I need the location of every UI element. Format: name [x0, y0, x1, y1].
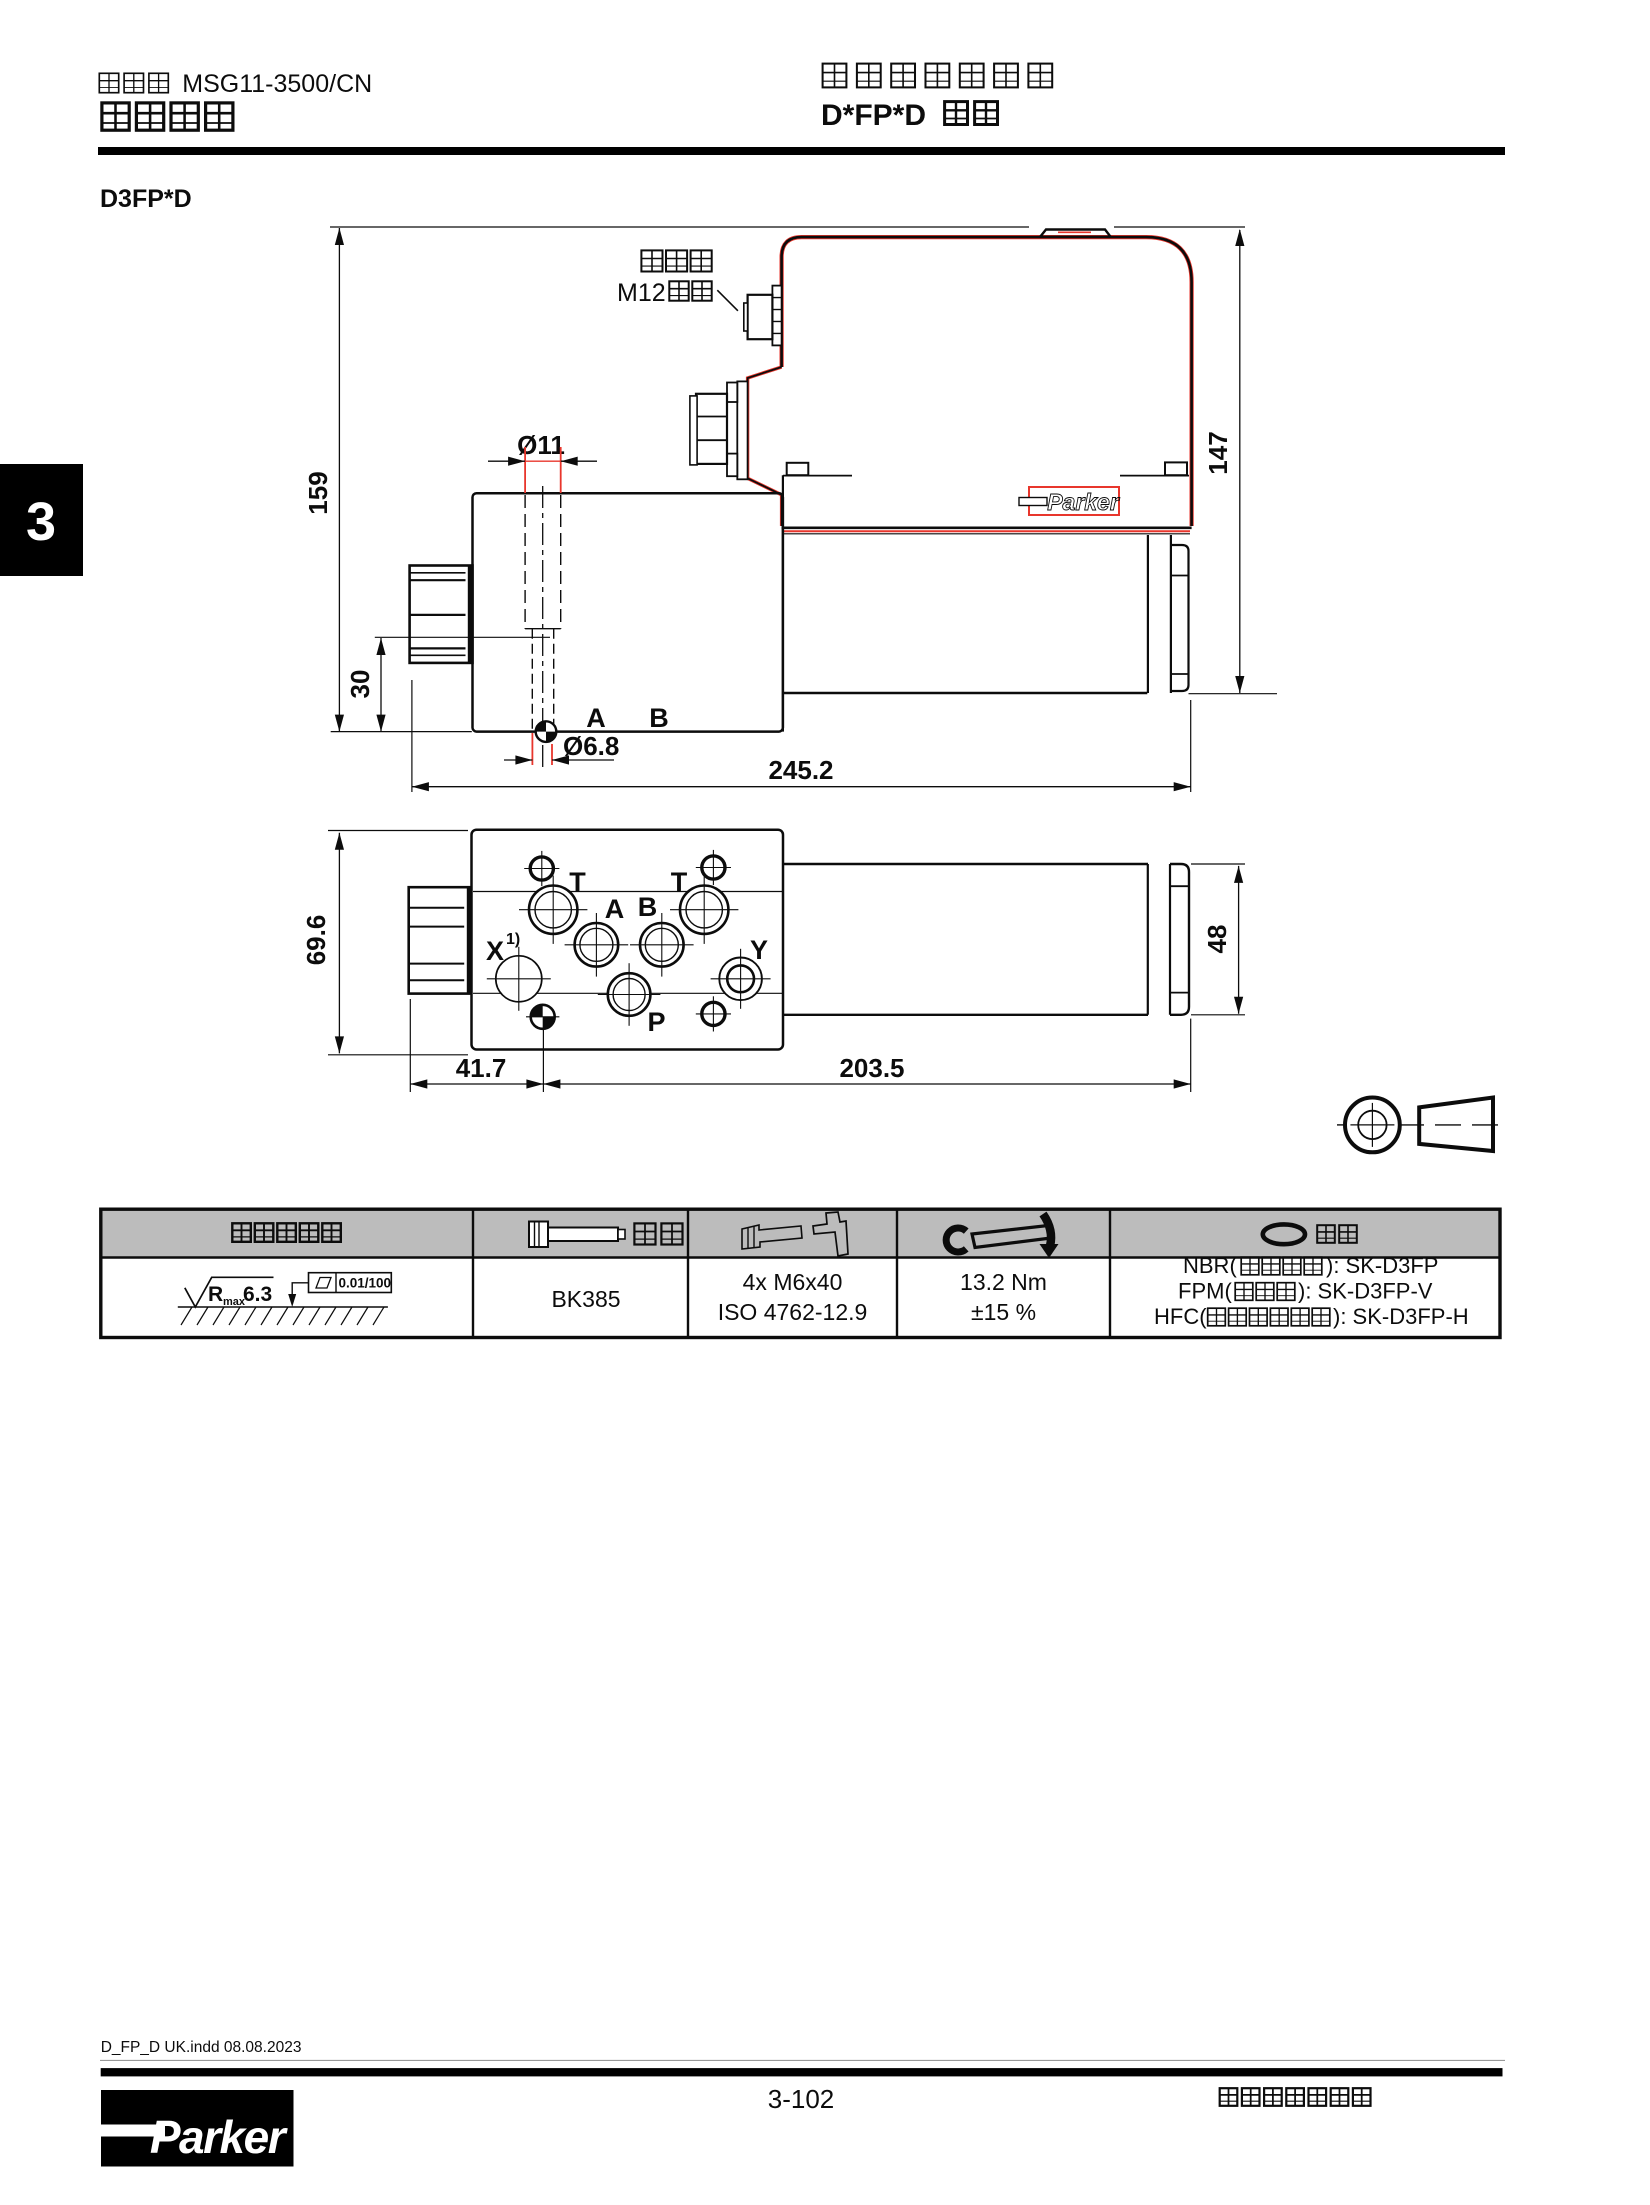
svg-text:203.5: 203.5: [839, 1053, 904, 1083]
svg-text:147: 147: [1203, 431, 1233, 474]
svg-text:3-102: 3-102: [768, 2084, 835, 2114]
svg-text:HFC(: HFC(: [1154, 1304, 1207, 1329]
svg-text:3: 3: [26, 492, 56, 552]
svg-text:A: A: [605, 894, 625, 924]
svg-text:Parker: Parker: [1047, 489, 1120, 515]
svg-text:T: T: [671, 867, 688, 897]
svg-text:T: T: [569, 867, 586, 897]
svg-text:FPM(: FPM(: [1178, 1279, 1232, 1304]
svg-text:30: 30: [345, 670, 375, 699]
svg-text:69.6: 69.6: [301, 915, 331, 966]
svg-text:B: B: [649, 703, 669, 733]
svg-text:A: A: [586, 703, 606, 733]
svg-text:ISO 4762-12.9: ISO 4762-12.9: [718, 1299, 868, 1325]
svg-text:): SK-D3FP: ): SK-D3FP: [1326, 1253, 1438, 1278]
svg-text:MSG11-3500/CN: MSG11-3500/CN: [182, 70, 372, 98]
svg-text:D*FP*D: D*FP*D: [821, 99, 926, 132]
svg-text:P: P: [647, 1007, 665, 1037]
svg-text:NBR(: NBR(: [1183, 1253, 1237, 1278]
svg-text:Ø6.8: Ø6.8: [563, 731, 619, 761]
svg-text:1): 1): [506, 931, 520, 948]
svg-text:13.2 Nm: 13.2 Nm: [960, 1269, 1047, 1295]
svg-text:245.2: 245.2: [768, 755, 833, 785]
svg-text:): SK-D3FP-H: ): SK-D3FP-H: [1333, 1304, 1469, 1329]
svg-text:159: 159: [303, 471, 333, 514]
svg-text:6.3: 6.3: [243, 1283, 272, 1306]
svg-text:R: R: [208, 1283, 223, 1306]
svg-text:D3FP*D: D3FP*D: [100, 185, 192, 213]
svg-text:): SK-D3FP-V: ): SK-D3FP-V: [1298, 1279, 1433, 1304]
svg-text:D_FP_D UK.indd 08.08.2023: D_FP_D UK.indd 08.08.2023: [101, 2039, 302, 2056]
svg-text:BK385: BK385: [551, 1286, 620, 1312]
svg-text:4x M6x40: 4x M6x40: [743, 1269, 843, 1295]
svg-text:X: X: [486, 936, 504, 966]
svg-text:48: 48: [1202, 925, 1232, 954]
svg-text:±15 %: ±15 %: [971, 1299, 1036, 1325]
svg-text:B: B: [638, 892, 658, 922]
svg-text:Parker: Parker: [150, 2111, 288, 2163]
svg-text:0.01/100: 0.01/100: [339, 1276, 392, 1291]
svg-text:Y: Y: [750, 935, 768, 965]
svg-text:M12: M12: [617, 279, 666, 307]
svg-text:41.7: 41.7: [456, 1053, 507, 1083]
